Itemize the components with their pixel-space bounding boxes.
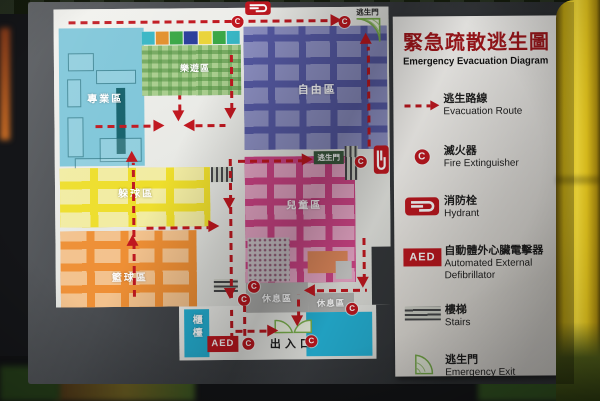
zone-label-free: 自由區 [282,81,352,98]
legend-label-en: Emergency Exit [445,366,515,378]
evacuation-map: 專業區 樂遊區 自由區 躲球區 籃球區 [53,7,396,366]
route-line [235,330,267,333]
equipment-outline [68,53,94,71]
legend-label-zh: 滅火器 [444,142,519,159]
equipment-outline [67,117,83,157]
legend-label-zh: 自動體外心臟電擊器 [444,242,548,259]
legend-item-stairs: 樓梯 Stairs [401,300,555,329]
legend-item-exit: 逃生門 Emergency Exit [401,350,555,379]
route-arrow [331,14,342,26]
zone-garden: 樂遊區 [142,45,241,96]
tile [226,31,239,44]
route-line [230,52,234,110]
cyan-rest-block [306,312,372,357]
route-arrow [357,277,369,288]
legend-item-extinguisher: C 滅火器 Fire Extinguisher [400,141,554,170]
map-corner-notch [372,247,393,305]
route-arrow [172,110,184,121]
evacuation-route-icon [399,90,443,120]
route-arrow [183,119,194,131]
sign-subtitle: Emergency Evacuation Diagram [403,55,548,67]
fire-extinguisher-icon: C [248,281,260,293]
legend-label-zh: 逃生門 [445,350,515,366]
route-line [317,289,367,292]
counter-label: 櫃檯 [191,314,203,340]
exit-door-label-top: 逃生門 [347,7,387,17]
route-line [195,124,225,127]
legend-label-zh: 樓梯 [445,301,471,317]
counter-block: 櫃檯 [184,309,209,357]
route-arrow [224,108,236,119]
legend-list: 逃生路線 Evacuation Route C 滅火器 Fire Extingu… [399,79,555,378]
legend-label-en: Evacuation Route [443,106,522,118]
fire-extinguisher-icon: C [238,294,250,306]
zone-kids: 兒童區 [245,156,356,283]
stairs-icon [401,301,445,325]
legend-item-route: 逃生路線 Evacuation Route [399,89,553,120]
route-arrow [208,220,219,232]
legend-label-en: Hydrant [444,208,479,220]
photo-of-evacuation-sign: 專業區 樂遊區 自由區 躲球區 籃球區 [0,0,600,401]
route-arrow [224,288,236,299]
route-arrow [267,325,278,337]
route-line [238,159,304,163]
legend-label-en: Stairs [445,317,471,329]
route-arrow [153,120,164,132]
route-arrow [291,315,303,326]
zone-label-kids: 兒童區 [280,196,328,211]
tile [212,31,225,44]
zone-label-specialty: 專業區 [69,90,141,106]
route-line [243,306,246,336]
fire-extinguisher-icon: C [355,156,367,168]
zone-free: 自由區 [244,26,388,150]
sign-title: 緊急疏散逃生圖 [403,25,550,55]
legend-panel: 緊急疏散逃生圖 Emergency Evacuation Diagram 逃生路… [393,15,562,376]
zone-label-dodgeball: 躲球區 [110,185,162,200]
tile [184,31,197,44]
route-line [362,235,365,281]
route-arrow [304,284,315,296]
ball-pit-patch [247,237,289,281]
hydrant-icon [244,1,271,16]
route-arrow [126,151,138,162]
hydrant-icon [400,192,444,220]
legend-item-aed: AED 自動體外心臟電擊器 Automated External Defibri… [400,241,554,281]
route-arrow [302,153,313,165]
route-arrow [223,198,235,209]
fire-extinguisher-icon: C [305,335,317,347]
tile [170,31,183,44]
zone-specialty: 專業區 [59,28,145,167]
fire-extinguisher-icon: C [400,142,444,170]
grey-patch [336,261,352,279]
fire-extinguisher-icon: C [242,338,254,350]
exit-door-icon [401,351,445,377]
fire-extinguisher-icon: C [346,303,358,315]
route-line [178,95,181,111]
legend-label-en: Fire Extinguisher [444,158,519,170]
zone-label-basketball: 籃球區 [104,269,156,284]
route-line [230,310,233,340]
aed-marker: AED [207,336,238,352]
zone-label-garden: 樂遊區 [162,61,228,75]
route-arrow [126,235,138,246]
pole-bottom-shade [556,322,600,401]
equipment-outline [96,70,136,84]
route-line [95,125,151,128]
exit-door-label-right: 逃生門 [314,151,344,164]
tile [198,31,211,44]
route-line [146,226,208,230]
legend-label-zh: 逃生路線 [443,90,522,107]
colored-tile-strip [142,31,240,45]
tile [142,32,155,45]
legend-item-hydrant: 消防栓 Hydrant [400,191,554,220]
background-orange-blur [0,28,10,140]
pole-crease [556,176,600,184]
legend-label-en: Automated External Defibrillator [444,258,548,282]
aed-badge: AED [400,242,444,272]
hydrant-icon [373,145,390,175]
tile [156,31,169,44]
legend-label-zh: 消防栓 [444,192,479,208]
route-arrow [360,33,372,44]
